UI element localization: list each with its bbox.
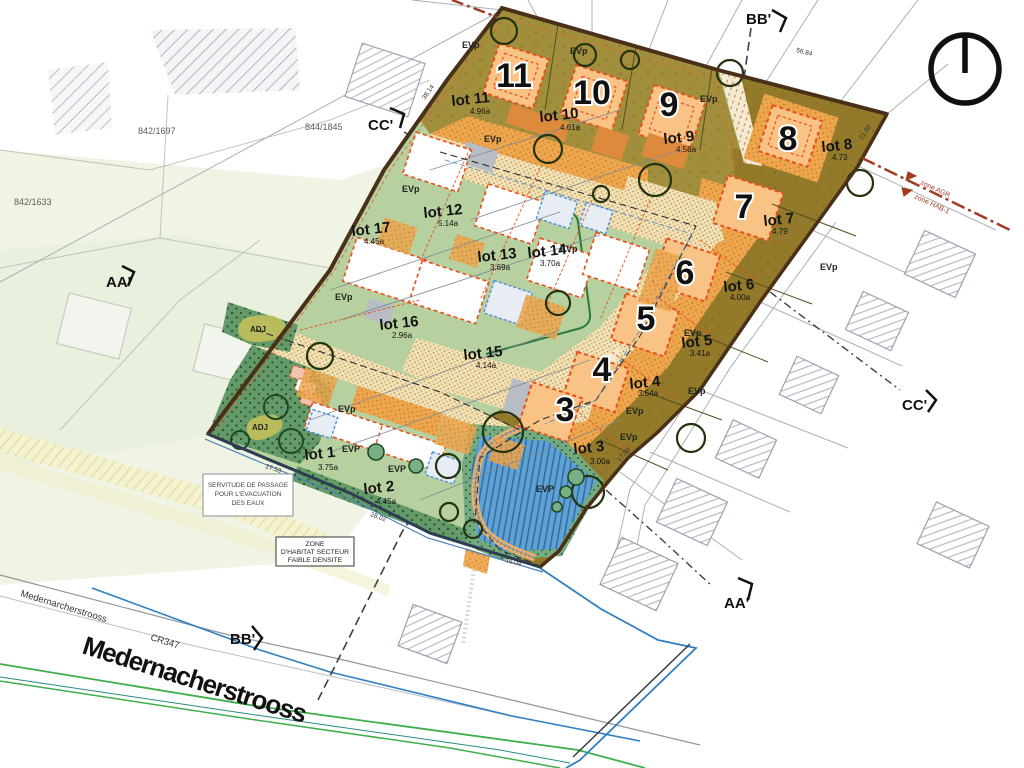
svg-text:EVp: EVp	[820, 262, 838, 272]
svg-text:POUR L'EVACUATION: POUR L'EVACUATION	[215, 491, 282, 498]
svg-text:EVP: EVP	[342, 444, 360, 454]
svg-text:2.96a: 2.96a	[392, 331, 413, 340]
svg-text:DES EAUX: DES EAUX	[232, 500, 266, 507]
svg-text:4.45a: 4.45a	[376, 497, 397, 506]
svg-text:4: 4	[593, 351, 612, 389]
svg-text:4.58a: 4.58a	[676, 145, 697, 154]
svg-text:EVp: EVp	[560, 244, 578, 254]
svg-text:5: 5	[637, 300, 656, 338]
svg-text:EVp: EVp	[338, 404, 356, 414]
svg-text:EVp: EVp	[688, 386, 706, 396]
svg-text:3.41a: 3.41a	[690, 349, 711, 358]
svg-text:844/1845: 844/1845	[305, 122, 343, 132]
svg-text:5.14a: 5.14a	[438, 219, 459, 228]
svg-text:BB': BB'	[746, 11, 771, 28]
svg-text:4.73: 4.73	[832, 153, 848, 162]
svg-text:3.70a: 3.70a	[540, 259, 561, 268]
svg-text:11: 11	[496, 57, 532, 95]
svg-text:EVp: EVp	[484, 134, 502, 144]
svg-text:4.96a: 4.96a	[470, 107, 491, 116]
svg-text:FAIBLE DENSITE: FAIBLE DENSITE	[288, 557, 343, 564]
svg-text:AA': AA'	[106, 274, 131, 291]
svg-text:EVp: EVp	[700, 94, 718, 104]
svg-text:D'HABITAT SECTEUR: D'HABITAT SECTEUR	[281, 549, 349, 556]
svg-text:10: 10	[573, 74, 611, 112]
svg-text:CC': CC'	[902, 397, 927, 414]
svg-text:4.14a: 4.14a	[476, 361, 497, 370]
svg-text:EVp: EVp	[335, 292, 353, 302]
svg-text:EVp: EVp	[570, 46, 588, 56]
svg-text:9: 9	[660, 86, 679, 124]
svg-text:lot 3: lot 3	[573, 438, 605, 458]
svg-text:CC': CC'	[368, 117, 393, 134]
svg-text:EVp: EVp	[684, 328, 702, 338]
svg-text:4.61a: 4.61a	[560, 123, 581, 132]
svg-text:lot 2: lot 2	[363, 478, 395, 498]
svg-text:EVp: EVp	[620, 432, 638, 442]
svg-text:842/1633: 842/1633	[14, 197, 52, 207]
svg-text:3.75a: 3.75a	[318, 463, 339, 472]
svg-text:ADJ: ADJ	[250, 325, 266, 334]
svg-text:4.79: 4.79	[772, 227, 788, 236]
svg-text:EVp: EVp	[626, 406, 644, 416]
svg-text:8: 8	[779, 120, 798, 158]
svg-text:lot 1: lot 1	[304, 444, 336, 464]
svg-text:BB': BB'	[230, 631, 255, 648]
svg-text:AA': AA'	[724, 595, 749, 612]
svg-text:4.45a: 4.45a	[364, 237, 385, 246]
svg-text:3.00a: 3.00a	[590, 457, 611, 466]
svg-text:3.54a: 3.54a	[638, 389, 659, 398]
svg-text:SERVITUDE DE PASSAGE: SERVITUDE DE PASSAGE	[208, 482, 289, 489]
svg-text:3.69a: 3.69a	[490, 263, 511, 272]
svg-text:7: 7	[735, 188, 754, 226]
svg-text:EVP: EVP	[388, 464, 406, 474]
svg-text:6: 6	[676, 254, 695, 292]
svg-text:842/1697: 842/1697	[138, 126, 176, 136]
svg-text:3: 3	[556, 391, 575, 429]
svg-text:EVp: EVp	[402, 184, 420, 194]
svg-text:4.00a: 4.00a	[730, 293, 751, 302]
svg-text:ZONE: ZONE	[306, 541, 325, 548]
svg-text:EVP: EVP	[536, 484, 554, 494]
svg-text:ADJ: ADJ	[252, 423, 268, 432]
svg-text:EVp: EVp	[462, 40, 480, 50]
